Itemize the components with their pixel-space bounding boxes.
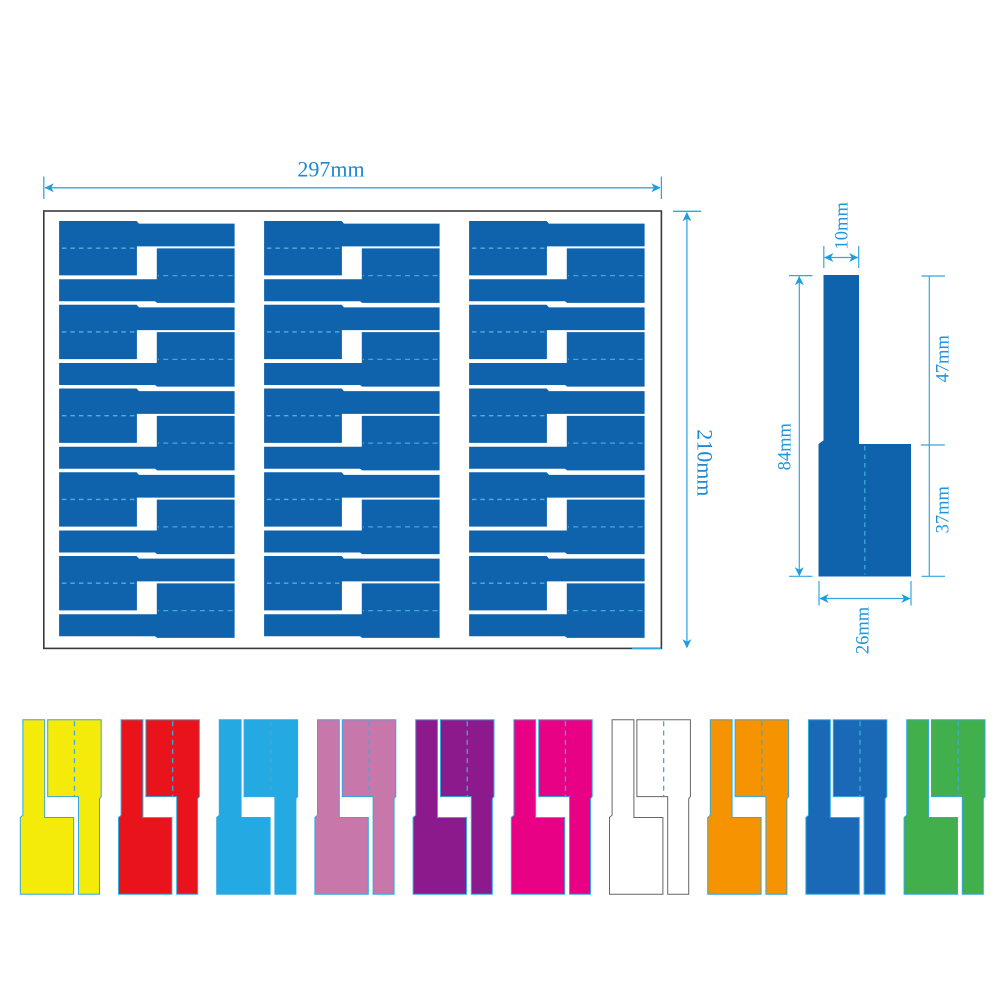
- svg-text:10mm: 10mm: [833, 202, 853, 250]
- svg-text:210mm: 210mm: [693, 429, 718, 496]
- svg-text:26mm: 26mm: [854, 606, 874, 654]
- svg-text:297mm: 297mm: [297, 157, 364, 182]
- svg-text:84mm: 84mm: [776, 422, 796, 470]
- svg-text:37mm: 37mm: [934, 485, 954, 533]
- svg-text:47mm: 47mm: [934, 335, 954, 383]
